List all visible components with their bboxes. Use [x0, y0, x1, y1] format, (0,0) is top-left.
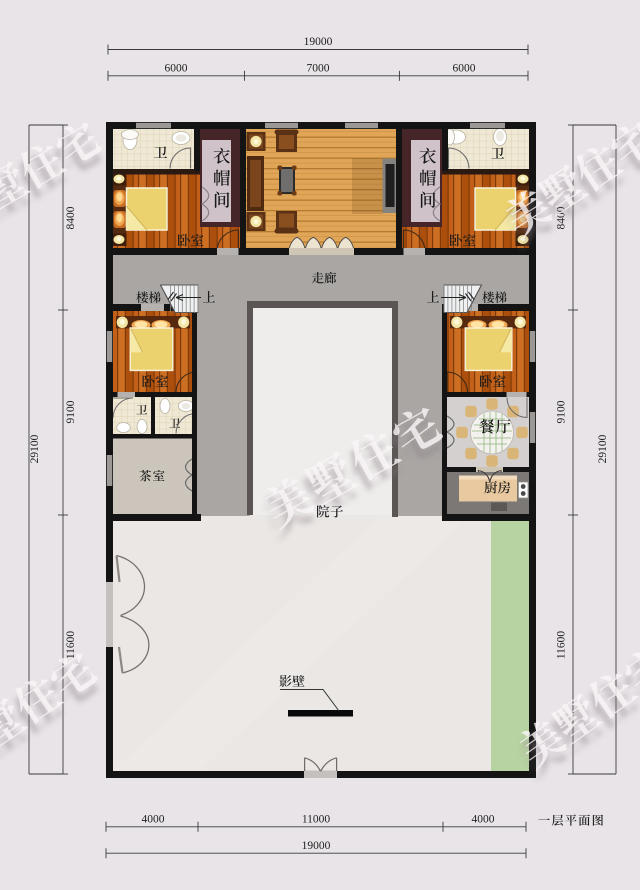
svg-text:19000: 19000 — [304, 36, 333, 48]
svg-text:4000: 4000 — [142, 814, 165, 826]
svg-text:8400: 8400 — [65, 206, 77, 229]
svg-text:7000: 7000 — [307, 63, 330, 75]
svg-text:9100: 9100 — [65, 400, 77, 423]
svg-text:6000: 6000 — [453, 63, 476, 75]
svg-text:9100: 9100 — [556, 400, 568, 423]
svg-text:29100: 29100 — [29, 434, 41, 463]
svg-text:11600: 11600 — [65, 631, 77, 660]
svg-text:11600: 11600 — [556, 631, 568, 660]
svg-text:11000: 11000 — [302, 814, 331, 826]
svg-text:4000: 4000 — [472, 814, 495, 826]
svg-text:6000: 6000 — [165, 63, 188, 75]
svg-text:19000: 19000 — [302, 840, 331, 852]
svg-text:29100: 29100 — [597, 434, 609, 463]
